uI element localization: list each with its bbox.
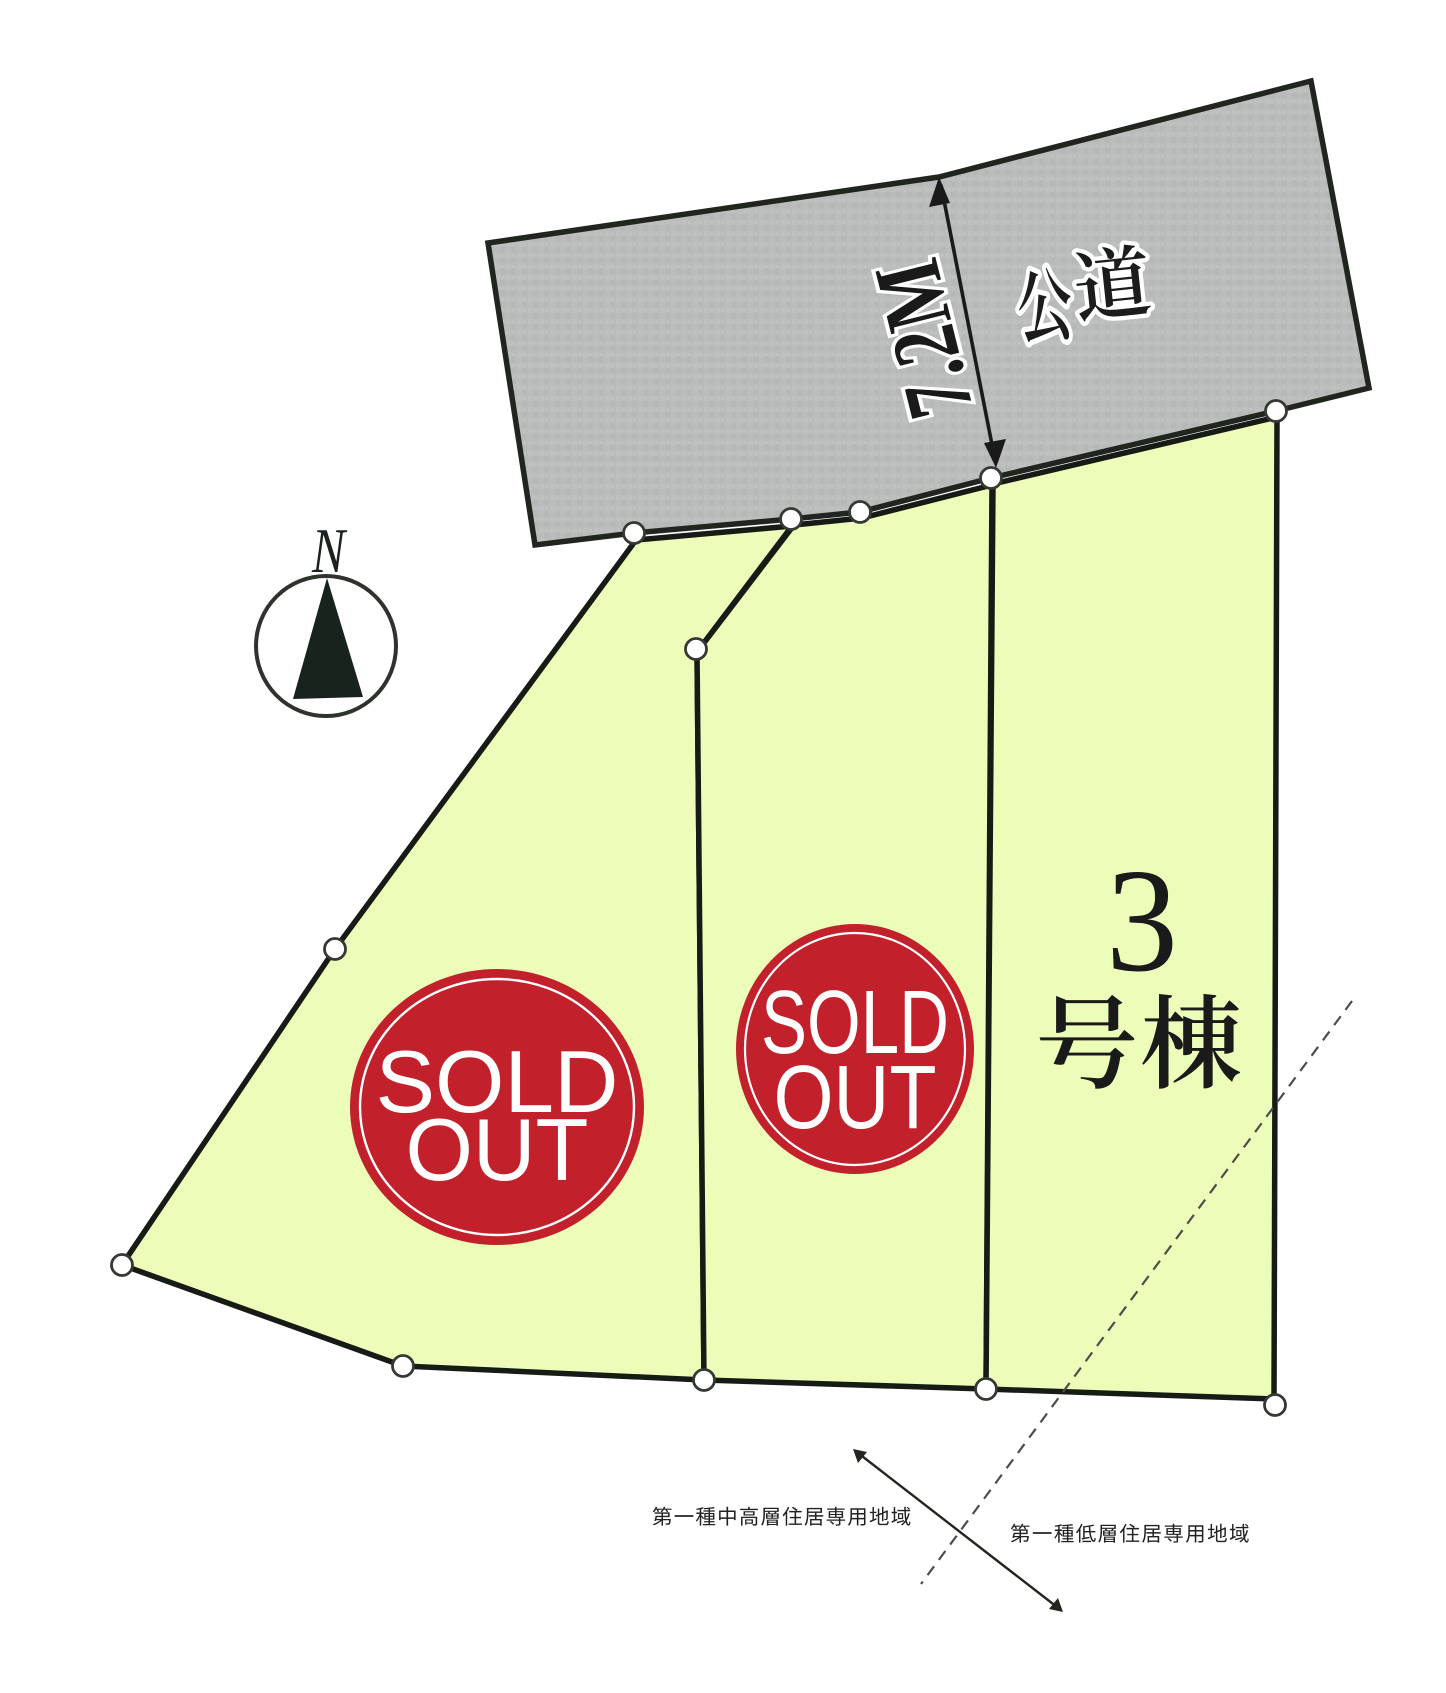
svg-text:N: N — [311, 515, 347, 586]
svg-text:3: 3 — [1106, 839, 1178, 1003]
svg-text:OUT: OUT — [406, 1100, 589, 1199]
svg-text:OUT: OUT — [774, 1048, 937, 1148]
